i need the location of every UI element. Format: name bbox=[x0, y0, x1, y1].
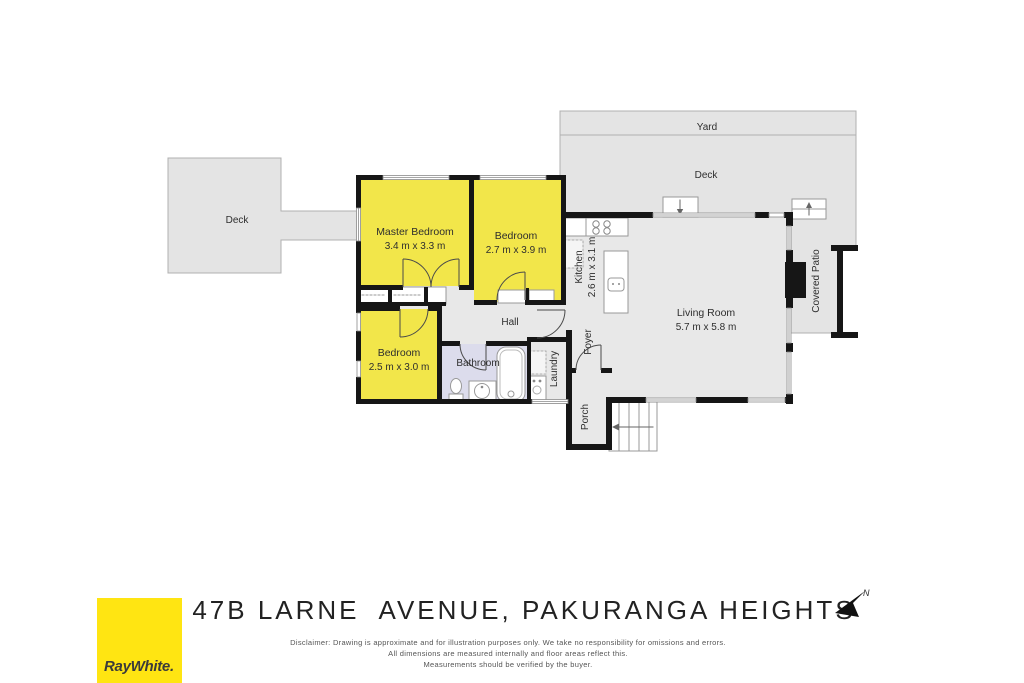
bedroom-2-label: Bedroom bbox=[495, 230, 538, 242]
deck-top-label: Deck bbox=[695, 170, 719, 181]
fireplace bbox=[785, 262, 806, 298]
bedroom-3-dims: 2.5 m x 3.0 m bbox=[369, 362, 430, 373]
covered-patio-label: Covered Patio bbox=[811, 249, 822, 313]
porch-stairs bbox=[609, 402, 657, 451]
kitchen-island bbox=[604, 251, 628, 313]
vanity-sink-icon bbox=[469, 381, 496, 401]
master-bedroom-label: Master Bedroom bbox=[376, 226, 454, 238]
floorplan-page: Yard Deck Deck Master Bedroom 3.4 m x 3.… bbox=[0, 0, 1024, 683]
laundry-label: Laundry bbox=[549, 351, 560, 387]
disclaimer-line-1: Disclaimer: Drawing is approximate and f… bbox=[278, 638, 738, 649]
bedroom-3-label: Bedroom bbox=[378, 347, 421, 359]
yard-label: Yard bbox=[697, 122, 717, 133]
bathtub-icon bbox=[497, 347, 525, 402]
raywhite-logo-text: RayWhite. bbox=[97, 658, 174, 683]
kitchen-label: Kitchen bbox=[574, 250, 585, 283]
address-title: 47B LARNE AVENUE, PAKURANGA HEIGHTS bbox=[192, 595, 855, 626]
porch-label: Porch bbox=[580, 404, 591, 430]
foyer-label: Foyer bbox=[583, 329, 594, 355]
disclaimer-line-2: All dimensions are measured internally a… bbox=[278, 649, 738, 660]
north-arrow-icon: N bbox=[832, 585, 872, 623]
deck-left-label: Deck bbox=[226, 215, 250, 226]
bathroom-label: Bathroom bbox=[456, 358, 499, 369]
master-bedroom-dims: 3.4 m x 3.3 m bbox=[385, 241, 446, 252]
stove-icon bbox=[586, 218, 628, 236]
washing-machine-icon bbox=[529, 351, 546, 401]
disclaimer-text: Disclaimer: Drawing is approximate and f… bbox=[278, 638, 738, 671]
bedroom-2-dims: 2.7 m x 3.9 m bbox=[486, 245, 547, 256]
patio-step bbox=[792, 199, 826, 219]
side-deck-area bbox=[168, 158, 358, 273]
kitchen-dims: 2.6 m x 3.1 m bbox=[587, 237, 598, 298]
living-room-dims: 5.7 m x 5.8 m bbox=[676, 322, 737, 333]
toilet-icon bbox=[449, 379, 463, 402]
disclaimer-line-3: Measurements should be verified by the b… bbox=[278, 660, 738, 671]
hall-label: Hall bbox=[501, 317, 518, 328]
floorplan-drawing: Yard Deck Deck Master Bedroom 3.4 m x 3.… bbox=[0, 0, 1024, 683]
north-label: N bbox=[863, 588, 870, 598]
living-room-label: Living Room bbox=[677, 307, 736, 319]
raywhite-logo: RayWhite. bbox=[97, 598, 182, 683]
